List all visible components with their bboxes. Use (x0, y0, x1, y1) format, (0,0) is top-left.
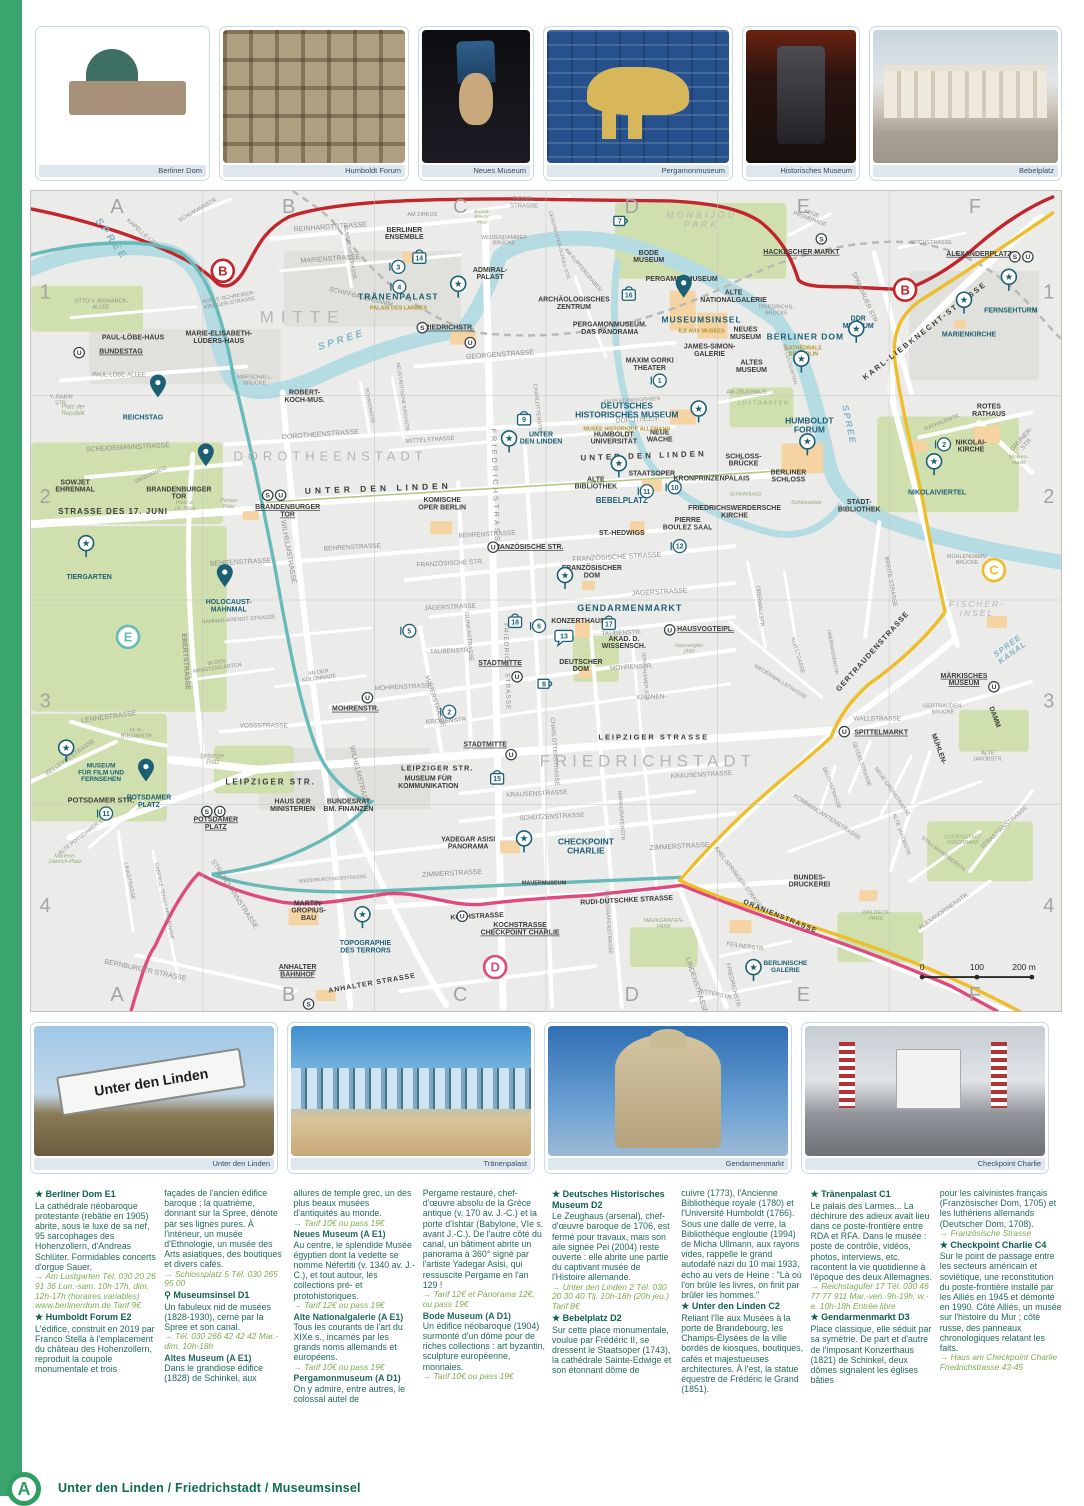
map-label: LUISENSTADTKIRCHPARK (944, 834, 982, 846)
thumbnail-caption: Humboldt Forum (223, 165, 405, 177)
station-u-badge: U (989, 682, 999, 692)
svg-text:★: ★ (454, 279, 463, 290)
thumbnail-card: Berliner Dom (35, 26, 210, 181)
text-segment: La cathédrale néobaroque protestante (re… (35, 1201, 157, 1272)
text-segment: Place classique, elle séduit par sa symé… (811, 1324, 933, 1385)
traenenpalast-photo (291, 1026, 531, 1156)
venue-cup-icon: 8 (538, 679, 552, 688)
thumbnail-caption: Bebelplatz (873, 165, 1058, 177)
thumbnail-caption: Pergamonmuseum (547, 165, 729, 177)
grid-letter: A (110, 196, 124, 218)
map-label: DOROTHEENSTADT (233, 448, 427, 463)
svg-text:E: E (124, 630, 133, 645)
guidebook-page: { "page": { "footer_badge": "A", "footer… (0, 0, 1084, 1500)
map-label: TOPOGRAPHIEDES TERRORS (340, 940, 392, 954)
text-segment: Reliant l'île aux Musées à la porte de B… (681, 1313, 803, 1395)
text-column: cuivre (1773), l'Ancienne Bibliothèque r… (681, 1188, 803, 1468)
svg-text:S: S (306, 1001, 311, 1008)
svg-text:6: 6 (537, 624, 541, 631)
map-label: HUMBOLDTUNIVERSITÄT (591, 431, 638, 445)
svg-text:U: U (667, 627, 672, 634)
svg-text:4: 4 (397, 284, 401, 291)
svg-text:★: ★ (82, 538, 91, 549)
svg-text:14: 14 (415, 255, 423, 262)
text-segment: Un fabuleux nid de musées (1828-1930), c… (164, 1302, 286, 1333)
svg-text:★: ★ (930, 457, 939, 468)
svg-text:★: ★ (505, 434, 514, 445)
map-label: Schlossplatz (791, 500, 822, 506)
berliner-dom-photo (39, 30, 206, 163)
text-segment: Sur cette place monumentale, voulue par … (552, 1325, 674, 1376)
station-u-badge: U (74, 347, 84, 357)
svg-text:U: U (468, 340, 473, 347)
page-edge-band (0, 0, 22, 1496)
svg-text:U: U (217, 809, 222, 816)
text-segment: ★ Bebelplatz D2 (552, 1313, 674, 1324)
text-segment: → Französische Strasse (940, 1229, 1062, 1239)
map-label: ÎLE AUX MUSÉES (678, 327, 725, 335)
text-segment: Pergame restauré, chef-d'œuvre absolu de… (423, 1188, 545, 1290)
station-u-badge: U (275, 490, 285, 500)
text-segment: ⚲ Museumsinsel D1 (164, 1290, 286, 1301)
map-svg: AABBCCDDEEFF11223344MITTEDOROTHEENSTADTF… (31, 191, 1061, 1011)
grid-letter: C (453, 984, 467, 1006)
svg-text:8: 8 (542, 681, 546, 688)
grid-number: 1 (1043, 282, 1054, 304)
grid-letter: F (969, 984, 981, 1006)
text-segment: allures de temple grec, un des plus beau… (294, 1188, 416, 1219)
map-label: TIERGARTEN (66, 574, 111, 581)
text-segment: ★ Checkpoint Charlie C4 (940, 1240, 1062, 1251)
text-segment: → Haus am Checkpoint Charlie Friedrichst… (940, 1353, 1062, 1373)
map-label: STADTMITTE (478, 660, 522, 667)
map-label: FRIEDRICHSTR. (420, 325, 474, 332)
text-segment: Alte Nationalgalerie (A E1) (294, 1312, 416, 1322)
text-segment: → Unter den Linden 2 Tél. 030 20 30 40 T… (552, 1283, 674, 1312)
grid-letter: D (625, 196, 639, 218)
svg-text:S: S (819, 236, 824, 243)
svg-text:U: U (991, 684, 996, 691)
svg-text:U: U (509, 752, 514, 759)
map-label: ROBERT-KOCH-MUS. (284, 390, 324, 404)
grid-letter: E (797, 984, 810, 1006)
svg-text:S: S (265, 493, 270, 500)
text-segment: → Tarif 10€ ou pass 19€ (294, 1363, 416, 1373)
map-label: PALAIS DES LARMES (370, 306, 427, 312)
svg-text:B: B (218, 263, 227, 278)
svg-text:★: ★ (749, 962, 758, 973)
text-segment: ★ Unter den Linden C2 (681, 1301, 803, 1312)
grid-letter: D (625, 984, 639, 1006)
map-label: LEIPZIGER STRASSE (598, 733, 709, 742)
map-label: KONZERTHAUS (551, 618, 605, 625)
route-badge-B: B (212, 260, 234, 282)
svg-text:★: ★ (561, 570, 570, 581)
grid-letter: B (282, 984, 295, 1006)
map-label: BUNDES-DRUCKEREI (789, 874, 830, 888)
thumbnail-caption: Unter den Linden (34, 1158, 274, 1170)
text-segment: → Tél. 030 266 42 42 42 Mar.-dim. 10h-18… (164, 1332, 286, 1352)
map-label: POTSDAMER STR. (68, 796, 135, 805)
route-badge-C: C (983, 559, 1005, 581)
svg-text:U: U (460, 914, 465, 921)
bebelplatz-photo (873, 30, 1058, 163)
map-label: FRIEDRICHSTADT (540, 752, 756, 771)
historisches-museum-photo (746, 30, 856, 163)
thumbnail-card: Checkpoint Charlie (801, 1022, 1049, 1174)
map-label: BEBELPLATZ (596, 496, 648, 505)
text-segment: pour les calvinistes français (Französis… (940, 1188, 1062, 1229)
text-column: pour les calvinistes français (Französis… (940, 1188, 1062, 1468)
checkpoint-charlie-photo (805, 1026, 1045, 1156)
svg-text:U: U (365, 695, 370, 702)
svg-text:11: 11 (102, 811, 109, 818)
map-label: HACKESCHER MARKT (763, 249, 840, 256)
svg-text:9: 9 (522, 417, 526, 424)
map-label: BUNDESRATBM. FINANZEN (324, 799, 374, 813)
station-u-badge: U (215, 806, 225, 816)
map-label: MAUERMUSEUM (522, 880, 567, 886)
text-segment: L'édifice, construit en 2019 par Franco … (35, 1324, 157, 1375)
map-label: STRASSE DES 17. JUNI (58, 507, 168, 516)
svg-text:S: S (205, 809, 210, 816)
venue-cup-icon: 7 (614, 216, 628, 225)
grid-number: 4 (40, 895, 51, 917)
text-segment: Tous les courants de l'art du XIXe s., i… (294, 1322, 416, 1363)
station-u-badge: U (512, 672, 522, 682)
text-segment: Le palais des Larmes... La déchirure des… (811, 1201, 933, 1283)
text-segment: Au centre, le splendide Musée égyptien d… (294, 1240, 416, 1301)
station-s-badge: S (816, 234, 826, 244)
map-label: NIKOLAIVIERTEL (908, 489, 967, 496)
text-column: Pergame restauré, chef-d'œuvre absolu de… (423, 1188, 545, 1468)
map-label: HOLOCAUST-MAHNMAL (206, 599, 253, 613)
grid-letter: B (282, 196, 295, 218)
map-label: ALTESMUSEUM (736, 360, 767, 374)
svg-text:B: B (900, 282, 909, 297)
text-segment: Le Zeughaus (arsenal), chef-d'œuvre baro… (552, 1211, 674, 1282)
svg-text:5: 5 (407, 629, 411, 636)
thumbnail-card: Pergamonmuseum (543, 26, 733, 181)
map-label: VOSSSTRASSE (240, 723, 289, 730)
route-badge-D: D (484, 956, 506, 978)
map-label: MARIE-ELISABETH-LÜDERS-HAUS (186, 331, 253, 345)
map-label: REICHSTAG (123, 414, 164, 421)
svg-text:3: 3 (396, 264, 400, 271)
svg-text:17: 17 (605, 622, 613, 629)
station-u-badge: U (362, 693, 372, 703)
text-segment: Sur le point de passage entre les secteu… (940, 1251, 1062, 1353)
map-label: MITTE (260, 308, 346, 327)
text-segment: Neues Museum (A E1) (294, 1229, 416, 1239)
grid-number: 1 (40, 282, 51, 304)
svg-text:D: D (490, 960, 499, 975)
svg-text:7: 7 (618, 219, 622, 226)
top-thumbnails: Berliner Dom Humboldt Forum Neues Museum… (35, 26, 1062, 181)
svg-text:S: S (1013, 254, 1018, 261)
bottom-thumbnails: Unter den Linden Unter den Linden Tränen… (30, 1022, 1049, 1174)
grid-letter: A (110, 984, 124, 1006)
text-segment: ★ Berliner Dom E1 (35, 1189, 157, 1200)
text-segment: cuivre (1773), l'Ancienne Bibliothèque r… (681, 1188, 803, 1300)
map-label: NEUESMUSEUM (730, 327, 761, 341)
svg-text:★: ★ (797, 354, 806, 365)
svg-text:★: ★ (358, 910, 367, 921)
thumbnail-card: Unter den Linden Unter den Linden (30, 1022, 278, 1174)
map-label: ALEXANDERPLATZ (946, 251, 1012, 258)
footer-title: Unter den Linden / Friedrichstadt / Muse… (58, 1481, 361, 1495)
station-s-badge: S (1010, 252, 1020, 262)
svg-text:★: ★ (615, 459, 624, 470)
station-s-badge: S (303, 999, 313, 1009)
map-label: ZIEGEL-STRASSE (510, 197, 538, 209)
map-label: Schinkelplatz (729, 491, 761, 497)
station-u-badge: U (506, 749, 516, 759)
map-label: KOMISCHEOPER BERLIN (418, 497, 466, 511)
map-label: WALLSTRASSE (853, 716, 901, 723)
gendarmenmarkt-photo (548, 1026, 788, 1156)
thumbnail-card: Historisches Museum (742, 26, 860, 181)
map-label: AM ZEUGHAUS (726, 390, 766, 396)
map-label: BERLINER DOM (767, 332, 844, 342)
thumbnail-card: Humboldt Forum (219, 26, 409, 181)
text-segment: → Tarif 10€ ou pass 19€ (423, 1372, 545, 1382)
svg-text:S: S (420, 325, 425, 332)
text-segment: ★ Deutsches Historisches Museum D2 (552, 1189, 674, 1210)
street-sign: Unter den Linden (56, 1048, 246, 1117)
svg-text:16: 16 (625, 292, 633, 299)
map-label: STAATSOPER (628, 470, 675, 477)
neues-museum-photo (422, 30, 530, 163)
text-segment: → Tarif 12€ ou pass 19€ (294, 1301, 416, 1311)
station-s-badge: S (417, 322, 427, 332)
text-segment: ★ Tränenpalast C1 (811, 1189, 933, 1200)
text-column: ★ Berliner Dom E1La cathédrale néobaroqu… (35, 1188, 157, 1468)
map-label: LEIPZIGER STR. (225, 778, 315, 787)
svg-text:U: U (278, 493, 283, 500)
humboldt-forum-photo (223, 30, 405, 163)
thumbnail-caption: Neues Museum (422, 165, 530, 177)
map-label: PAUL-LÖBE-ALLEE (92, 372, 146, 379)
svg-text:13: 13 (560, 634, 568, 641)
map-label: MARIENKIRCHE (942, 332, 997, 339)
grid-number: 3 (40, 691, 51, 713)
svg-text:U: U (842, 729, 847, 736)
map-label: MOHRENSTR. (332, 706, 379, 713)
svg-text:U: U (1025, 254, 1030, 261)
svg-text:U: U (515, 674, 520, 681)
map-label: FERNSEHTURM (984, 308, 1038, 315)
unter-den-linden-photo: Unter den Linden (34, 1026, 274, 1156)
map-label: FRANZÖSISCHE STR. (491, 542, 564, 551)
map-label: ANHALTERBAHNHOF (279, 964, 317, 978)
svg-text:U: U (491, 545, 496, 552)
thumbnail-caption: Historisches Museum (746, 165, 856, 177)
text-segment: ★ Gendarmenmarkt D3 (811, 1312, 933, 1323)
grid-number: 2 (40, 486, 51, 508)
map-label: YADEGAR ASISIPANORAMA (441, 836, 495, 850)
thumbnail-caption: Tränenpalast (291, 1158, 531, 1170)
map-label: Platz d.18. März (174, 500, 196, 512)
text-segment: Un édifice néobaroque (1904) surmonté d'… (423, 1321, 545, 1372)
map-label: SPITTELMARKT (854, 730, 909, 737)
svg-text:10: 10 (671, 485, 679, 492)
map-label: KRONPRINZENPALAIS (674, 475, 750, 482)
svg-text:100: 100 (970, 962, 984, 972)
svg-text:2: 2 (447, 709, 451, 716)
text-segment: Dans le grandiose édifice (1828) de Schi… (164, 1363, 286, 1383)
text-segment: → Reichstagufer 17 Tél. 030 46 77 77 911… (811, 1282, 933, 1311)
thumbnail-card: Bebelplatz (869, 26, 1062, 181)
map-label: SCHLOSS-BRÜCKE (726, 453, 763, 467)
text-segment: → Schlossplatz 5 Tél. 030 265 95 00 (164, 1270, 286, 1290)
map-label: NIKOLAI-KIRCHE (955, 439, 987, 453)
map-label: LEIPZIGER STR. (401, 764, 473, 773)
text-column: façades de l'ancien édifice baroque ; la… (164, 1188, 286, 1468)
text-segment: → Am Lustgarten Tél. 030 20 26 91 36 Lun… (35, 1272, 157, 1311)
map-label: PAUL-LÖBE-HAUS (102, 333, 165, 342)
map-label: LUSTGARTEN (738, 400, 790, 406)
map-label: GENDARMENMARKT (577, 603, 682, 613)
station-u-badge: U (1023, 252, 1033, 262)
pergamonmuseum-photo (547, 30, 729, 163)
text-column: allures de temple grec, un des plus beau… (294, 1188, 416, 1468)
thumbnail-caption: Gendarmenmarkt (548, 1158, 788, 1170)
route-badge-E: E (117, 626, 139, 648)
thumbnail-card: Tränenpalast (287, 1022, 535, 1174)
station-s-badge: S (262, 490, 272, 500)
text-segment: Altes Museum (A E1) (164, 1353, 286, 1363)
grid-letter: C (453, 196, 467, 218)
route-badge-B: B (894, 279, 916, 301)
map-label: ST.-HEDWIGS (599, 530, 645, 537)
checkpoint-booth (896, 1049, 960, 1108)
svg-text:C: C (989, 563, 998, 578)
text-column: ★ Deutsches Historisches Museum D2Le Zeu… (552, 1188, 674, 1468)
station-u-badge: U (457, 911, 467, 921)
map-label: ROCHSTRASSE (910, 240, 952, 246)
svg-text:★: ★ (694, 404, 703, 415)
svg-text:0: 0 (920, 962, 925, 972)
text-segment: Bode Museum (A D1) (423, 1311, 545, 1321)
svg-text:2: 2 (942, 442, 946, 449)
text-segment: → Tarif 10€ ou pass 19€ (294, 1219, 416, 1229)
grid-number: 4 (1043, 895, 1054, 917)
map-label: SOWJETEHRENMAL (55, 479, 95, 493)
grid-letter: F (969, 196, 981, 218)
text-segment: On y admire, entre autres, le colossal a… (294, 1384, 416, 1404)
map-label: BUNDESTAG (99, 349, 143, 356)
map-label: MUSEUMSINSEL (662, 315, 742, 325)
svg-text:15: 15 (493, 776, 501, 783)
thumbnail-caption: Berliner Dom (39, 165, 206, 177)
svg-text:★: ★ (803, 437, 812, 448)
thumbnail-caption: Checkpoint Charlie (805, 1158, 1045, 1170)
text-segment: Pergamonmuseum (A D1) (294, 1373, 416, 1383)
thumbnail-card: Gendarmenmarkt (544, 1022, 792, 1174)
text-segment: ★ Humboldt Forum E2 (35, 1312, 157, 1323)
text-segment: façades de l'ancien édifice baroque ; la… (164, 1188, 286, 1270)
text-column: ★ Tränenpalast C1Le palais des Larmes...… (811, 1188, 933, 1468)
station-u-badge: U (665, 625, 675, 635)
svg-text:1: 1 (658, 378, 662, 385)
map-label: MUSEUM FÜRKOMMUNIKATION (398, 774, 458, 790)
map-label: HAUS DERMINISTERIEN (270, 799, 315, 813)
svg-text:★: ★ (960, 295, 969, 306)
map-label: PERGAMONMUSEUM.DAS PANORAMA (573, 322, 647, 336)
station-u-badge: U (839, 726, 849, 736)
svg-text:★: ★ (520, 834, 529, 845)
map-label: ADMIRAL-PALAST (473, 267, 508, 281)
station-u-badge: U (488, 542, 498, 552)
svg-text:★: ★ (852, 324, 861, 335)
map-label: HAUSVOGTEIPL. (677, 626, 734, 633)
map-label: MUSÉE HISTORIQUE ALLEMAND (583, 424, 670, 432)
map-label: BERLINERSCHLOSS (771, 469, 807, 483)
page-badge: A (7, 1472, 41, 1506)
station-u-badge: U (465, 337, 475, 347)
svg-text:U: U (77, 350, 82, 357)
map-label: AM ZIRKUS (407, 212, 437, 218)
text-segment: → Tarif 12€ et Panorama 12€, ou pass 19€ (423, 1290, 545, 1310)
svg-text:★: ★ (1005, 272, 1014, 283)
grid-number: 3 (1043, 691, 1054, 713)
svg-text:12: 12 (676, 544, 684, 551)
svg-text:18: 18 (511, 620, 519, 627)
city-map: AABBCCDDEEFF11223344MITTEDOROTHEENSTADTF… (30, 190, 1062, 1012)
svg-text:11: 11 (643, 489, 650, 496)
map-label: STADTMITTE (463, 742, 507, 749)
guide-text-columns: ★ Berliner Dom E1La cathédrale néobaroqu… (35, 1188, 1062, 1468)
station-s-badge: S (202, 806, 212, 816)
thumbnail-card: Neues Museum (418, 26, 534, 181)
map-label: Platz derRepublik (61, 404, 86, 416)
svg-text:200 m: 200 m (1012, 962, 1036, 972)
map-label: BERLINERENSEMBLE (385, 227, 424, 241)
grid-number: 2 (1043, 486, 1054, 508)
svg-text:★: ★ (62, 743, 71, 754)
